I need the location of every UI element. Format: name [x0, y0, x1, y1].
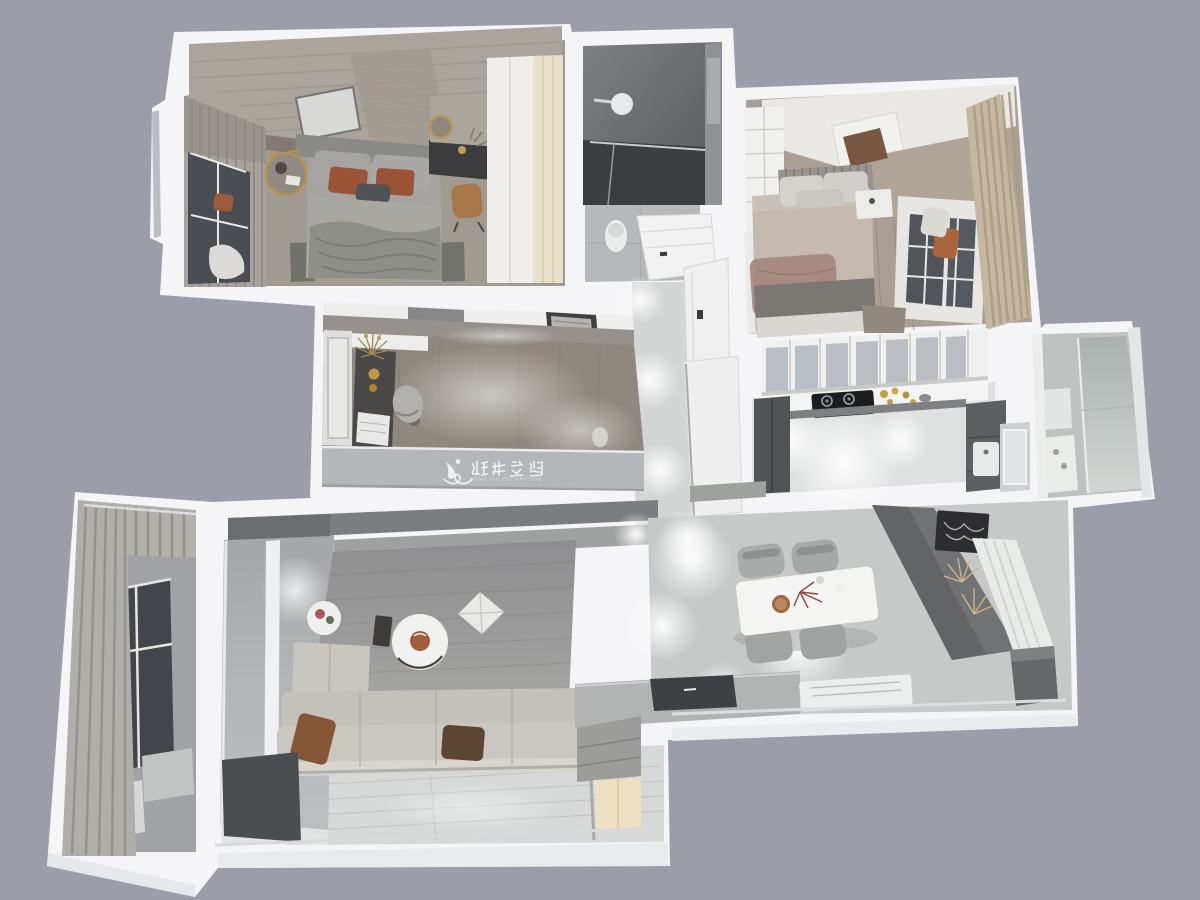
svg-text:HONG NIU DECORATION: HONG NIU DECORATION — [470, 477, 542, 482]
